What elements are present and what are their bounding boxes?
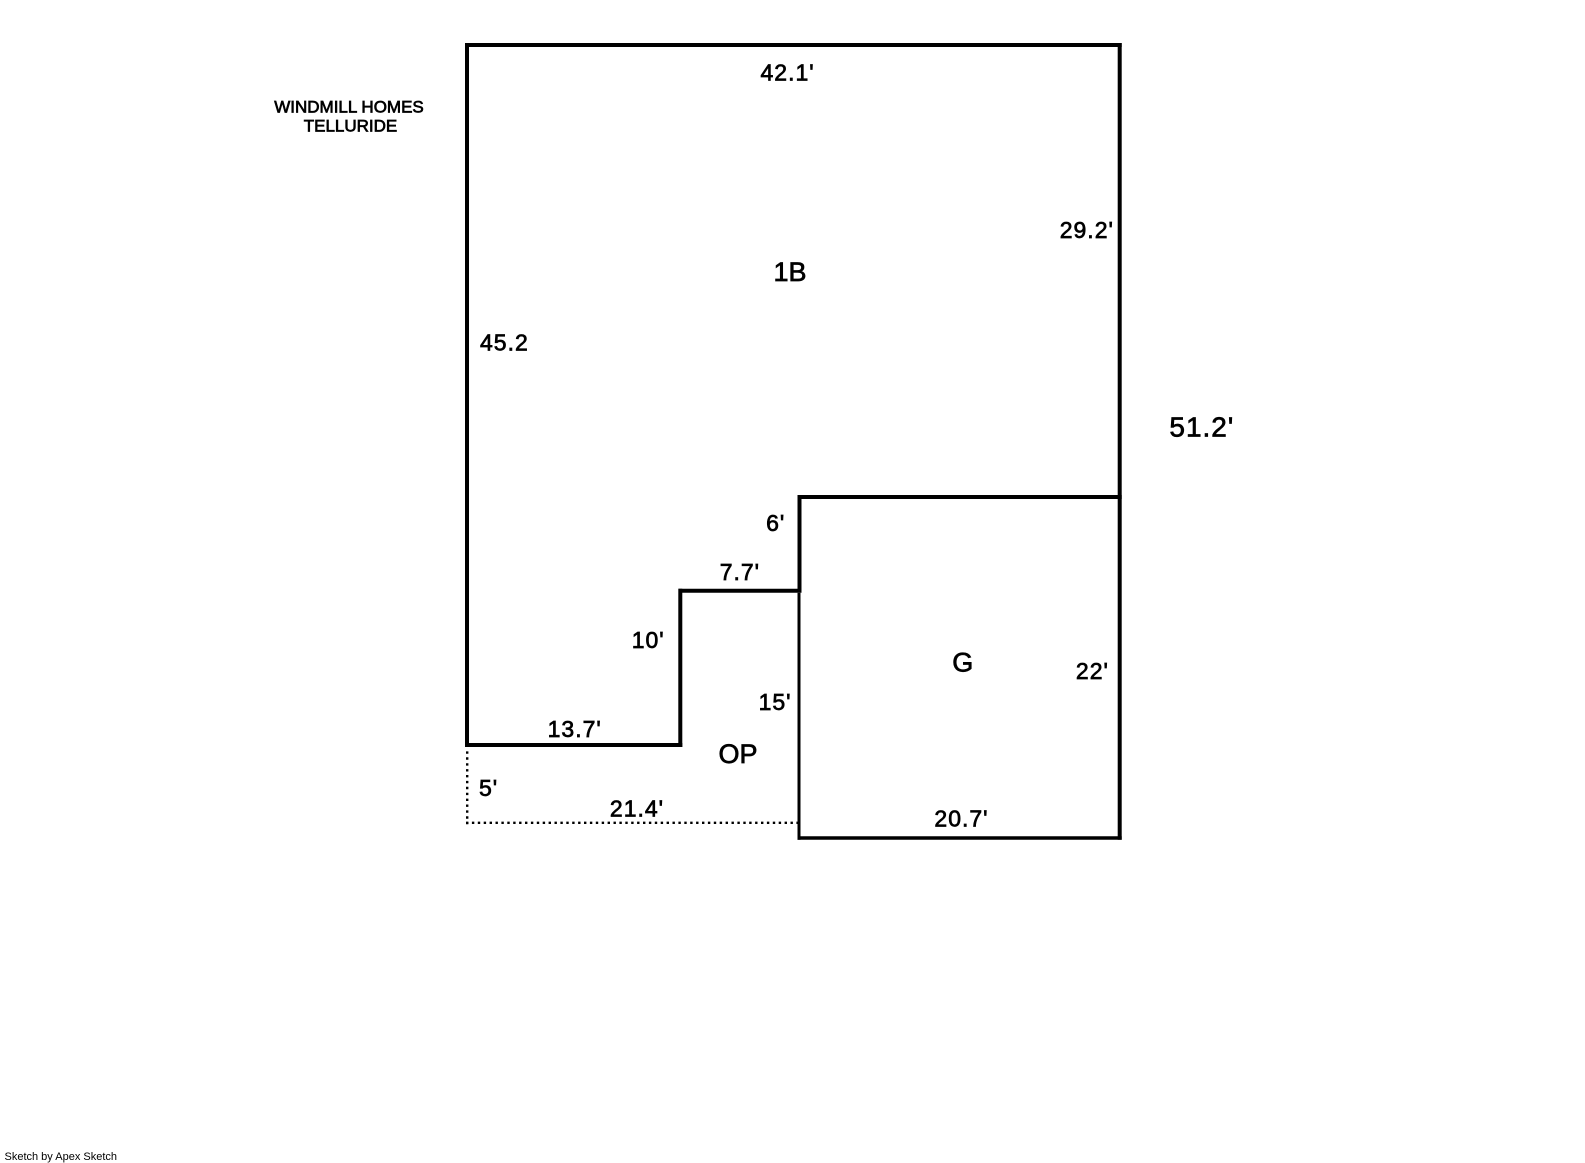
svg-text:51.2': 51.2' [1169, 412, 1234, 443]
svg-text:15': 15' [759, 689, 792, 715]
svg-text:1B: 1B [773, 257, 806, 287]
svg-text:45.2: 45.2 [480, 329, 529, 355]
svg-text:10': 10' [632, 627, 665, 653]
svg-text:29.2': 29.2' [1060, 217, 1114, 243]
svg-text:7.7': 7.7' [720, 559, 760, 585]
svg-text:G: G [952, 648, 973, 678]
svg-text:Sketch by Apex Sketch: Sketch by Apex Sketch [5, 1151, 118, 1163]
svg-text:42.1': 42.1' [761, 59, 815, 85]
svg-text:20.7': 20.7' [934, 805, 988, 831]
svg-text:22': 22' [1076, 658, 1109, 684]
svg-text:21.4': 21.4' [610, 796, 664, 822]
svg-text:TELLURIDE: TELLURIDE [304, 117, 398, 136]
svg-text:OP: OP [718, 739, 757, 769]
svg-text:WINDMILL HOMES: WINDMILL HOMES [274, 98, 424, 117]
svg-text:6': 6' [766, 510, 785, 536]
svg-text:13.7': 13.7' [548, 716, 602, 742]
svg-text:5': 5' [479, 775, 498, 801]
